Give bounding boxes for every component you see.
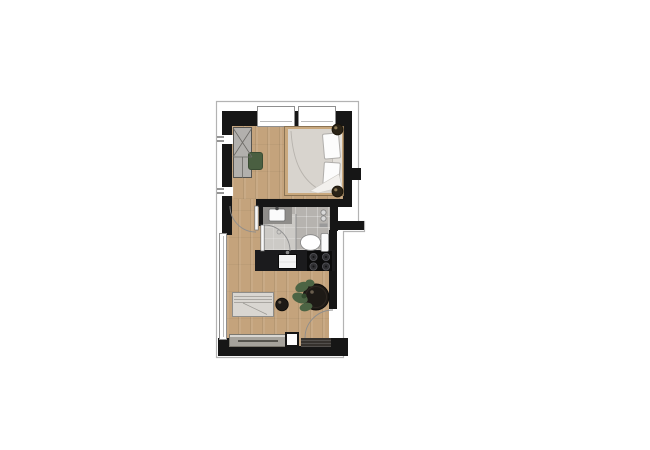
sideboard xyxy=(229,334,286,347)
pouf xyxy=(248,152,263,170)
window-top-right xyxy=(298,106,336,127)
kitchen-sink xyxy=(278,254,297,269)
window-glazing-line xyxy=(223,236,224,337)
floor-plan-canvas xyxy=(0,0,650,450)
doormat xyxy=(301,338,331,347)
cooktop xyxy=(307,251,332,271)
wall-bathroom-left-stub xyxy=(259,199,263,226)
window-side-living xyxy=(219,233,227,340)
window-glazing-line xyxy=(301,121,333,122)
wall-stub-right xyxy=(352,168,361,180)
wall-bottom-right-corner xyxy=(329,338,348,356)
wall-joint-gap xyxy=(221,187,233,196)
window-top-left xyxy=(257,106,295,127)
sofa xyxy=(232,292,274,317)
wall-right-bedroom xyxy=(343,111,352,207)
shower-area xyxy=(262,214,296,250)
window-glazing-line xyxy=(260,121,292,122)
sideboard-top-edge xyxy=(230,335,285,337)
pillow xyxy=(322,132,341,159)
wall-step-right xyxy=(330,221,364,230)
wall-left xyxy=(222,111,232,235)
pillow xyxy=(322,161,341,188)
wall-joint-gap xyxy=(221,135,233,144)
sideboard-handle xyxy=(238,340,278,342)
cabinet xyxy=(285,332,299,347)
